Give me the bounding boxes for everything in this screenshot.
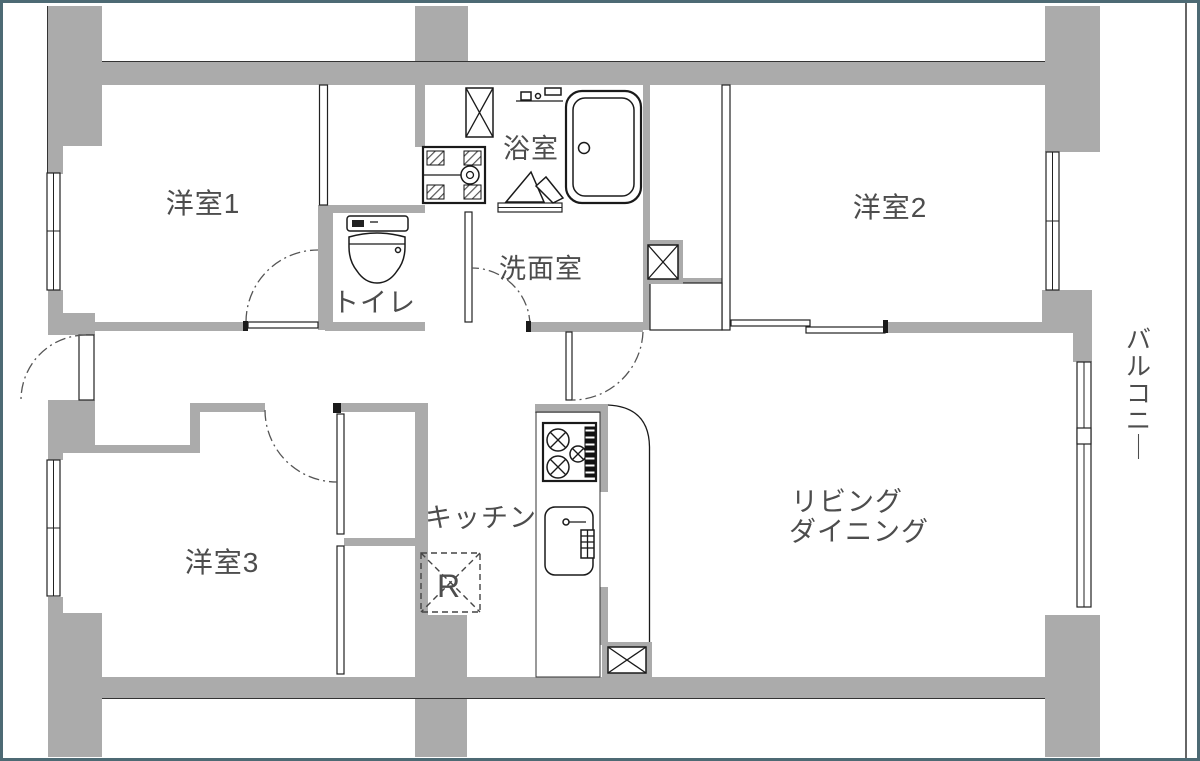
wall-top-band — [102, 62, 1045, 85]
wall-left-entry-upper — [48, 290, 95, 335]
living-door-leaf — [566, 332, 572, 400]
sliding-door-panel-2 — [806, 327, 885, 333]
washing-machine-pan-icon — [423, 147, 485, 203]
partition-bedroom1-east — [320, 85, 328, 205]
wall-closet-divider — [344, 538, 415, 546]
pipe-space-top-icon — [466, 88, 493, 137]
window-bedroom3-west — [47, 460, 60, 596]
entrance-door — [21, 335, 94, 400]
window-bedroom2-east — [1046, 152, 1059, 290]
bedroom3-door — [265, 403, 341, 482]
wall-right-mid-block — [1042, 290, 1092, 333]
bedroom3-door-post — [333, 403, 341, 413]
wall-kitchen-east-strip-lower — [600, 587, 608, 645]
entrance-door-leaf — [79, 335, 94, 400]
storage-box-bedroom2 — [650, 283, 722, 330]
wall-bedroom1-south — [95, 322, 248, 331]
label-bedroom1: 洋室1 — [166, 188, 241, 219]
bedroom1-door-swing-arc — [246, 250, 318, 322]
living-door-swing-arc — [572, 332, 643, 400]
wall-bathroom-east — [643, 85, 650, 330]
kitchen-sink-icon — [545, 507, 594, 575]
partition-toilet-east — [465, 212, 472, 322]
wall-toilet-west — [318, 205, 333, 330]
label-bathroom: 浴室 — [503, 134, 559, 164]
bathtub-icon — [566, 91, 641, 203]
wall-pillar-top-left — [48, 6, 102, 174]
wall-pillar-bottom-left — [48, 597, 102, 757]
shower-mixer-icon — [516, 88, 563, 101]
wall-washarea-west — [415, 85, 425, 147]
wall-left-entry-lower — [48, 400, 198, 460]
wall-pillar-top-right — [1045, 6, 1100, 152]
window-living-balcony-slider — [1077, 362, 1091, 607]
floor-plan-drawing: 洋室1 洋室2 洋室3 浴室 洗面室 トイレ キッチン リビング ダイニング R… — [0, 0, 1200, 761]
label-toilet: トイレ — [332, 288, 416, 318]
bedroom1-door-leaf — [248, 322, 318, 328]
wall-pillar-bottom-right — [1045, 615, 1100, 757]
closet-door-front-upper — [337, 414, 344, 534]
wall-bedroom3-north — [190, 403, 265, 453]
door-post-washroom-right — [526, 321, 531, 332]
wall-pillar-top-center — [415, 6, 468, 85]
wall-washroom-south — [530, 322, 643, 332]
sliding-door-post — [883, 320, 888, 333]
label-bedroom3: 洋室3 — [185, 547, 260, 578]
wall-pillar-bottom-center — [415, 615, 467, 757]
label-dining: ダイニング — [789, 517, 929, 547]
toilet-icon — [347, 216, 408, 283]
label-living: リビング — [791, 487, 903, 517]
floor-plan-canvas: 洋室1 洋室2 洋室3 浴室 洗面室 トイレ キッチン リビング ダイニング R… — [0, 0, 1200, 761]
wall-kitchen-east-strip-upper — [600, 413, 608, 492]
gas-stove-icon — [543, 423, 596, 481]
sliding-door-panel-1 — [731, 320, 810, 326]
wall-toilet-north — [318, 205, 425, 213]
wall-bedroom2-south-segment — [885, 322, 1042, 333]
entrance-door-swing-arc — [21, 335, 86, 400]
partition-bedroom2-west — [722, 85, 730, 330]
bedroom3-door-swing-arc — [265, 410, 337, 482]
pipe-space-mid-icon — [643, 240, 683, 284]
kitchen-opening-curve — [608, 405, 650, 645]
wall-bottom-band — [102, 677, 1045, 698]
bedroom1-door — [246, 250, 318, 328]
bedroom2-sliding-door — [731, 320, 888, 333]
label-bedroom2: 洋室2 — [853, 192, 928, 223]
room-labels: 洋室1 洋室2 洋室3 浴室 洗面室 トイレ キッチン リビング ダイニング R… — [166, 134, 1152, 604]
closet-door-front-lower — [337, 546, 344, 674]
living-hall-door — [566, 332, 643, 400]
wall-closet-north — [338, 403, 415, 412]
bath-folding-door-icon — [506, 172, 563, 203]
window-bedroom1-west — [47, 173, 60, 290]
label-balcony: バルコニ｜ — [1126, 326, 1152, 462]
label-refrigerator: R — [437, 568, 461, 604]
wall-right-mid-step — [1073, 333, 1092, 362]
door-post-bedroom1-left — [243, 321, 248, 331]
label-washroom: 洗面室 — [499, 254, 583, 284]
pipe-space-bottom-icon — [602, 642, 652, 678]
label-kitchen: キッチン — [425, 503, 537, 533]
wall-toilet-south — [325, 322, 425, 331]
